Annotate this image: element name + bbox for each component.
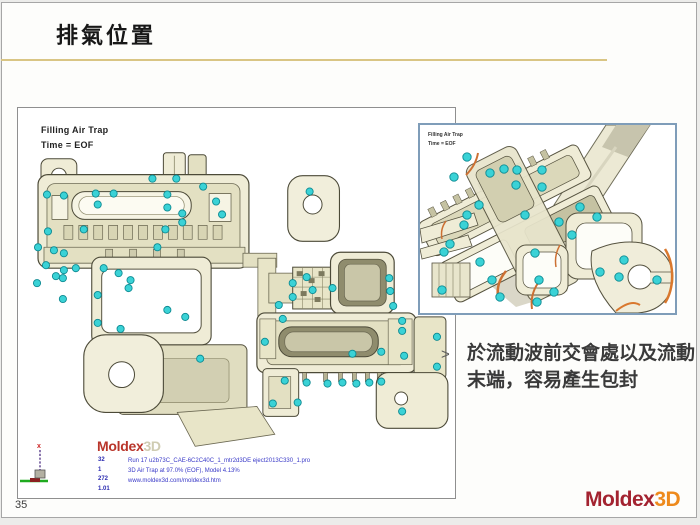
air-trap-marker [80, 226, 87, 233]
moldex3d-logo-primary: Moldex [585, 488, 654, 511]
inset-model-render [420, 125, 675, 313]
air-trap-marker [164, 204, 171, 211]
ribbed-block [432, 263, 470, 297]
annotation-text: 於流動波前交會處以及流動末端，容易產生包封 [467, 340, 699, 394]
air-trap-marker [538, 166, 546, 174]
air-trap-marker [59, 275, 66, 282]
air-trap-marker [463, 153, 471, 161]
air-trap-marker [218, 211, 225, 218]
inset-zoom-image: Filling Air Trap Time = EOF [418, 123, 677, 315]
air-trap-marker [433, 363, 440, 370]
run-info-number: 1 [98, 466, 118, 476]
air-trap-marker [125, 284, 132, 291]
air-trap-marker [386, 275, 393, 282]
air-trap-marker [438, 286, 446, 294]
air-trap-marker [60, 250, 67, 257]
air-trap-marker [349, 350, 356, 357]
air-trap-marker [281, 377, 288, 384]
page-number: 35 [15, 499, 27, 511]
moldex3d-watermark: Moldex3D [97, 438, 161, 454]
air-trap-marker [500, 165, 508, 173]
title-accent-line [1, 59, 607, 61]
air-trap-marker [275, 301, 282, 308]
air-trap-marker [303, 274, 310, 281]
result-label: Filling Air Trap Time = EOF [41, 123, 108, 153]
run-info-line: www.moldex3d.com/moldex3d.htm [128, 476, 310, 486]
air-trap-marker [59, 295, 66, 302]
moldex3d-watermark-secondary: 3D [143, 438, 160, 454]
main-simulation-image: Filling Air Trap Time = EOF [17, 107, 456, 499]
run-info-lines: Run 17 u2b73C_CAE-6C2C40C_1_mtr2d3DE eje… [128, 456, 310, 494]
air-trap-marker [433, 333, 440, 340]
air-trap-marker [34, 244, 41, 251]
air-trap-marker [399, 408, 406, 415]
air-trap-marker [329, 284, 336, 291]
right-top-box [331, 252, 395, 314]
air-trap-marker [115, 270, 122, 277]
air-trap-marker [94, 319, 101, 326]
air-trap-marker [596, 268, 604, 276]
air-trap-marker [279, 315, 286, 322]
air-trap-marker [60, 267, 67, 274]
air-trap-marker [173, 175, 180, 182]
air-trap-marker [476, 258, 484, 266]
air-trap-marker [261, 338, 268, 345]
moldex3d-watermark-primary: Moldex [97, 438, 143, 454]
air-trap-marker [179, 219, 186, 226]
air-trap-marker [401, 352, 408, 359]
air-trap-marker [94, 201, 101, 208]
air-trap-marker [164, 306, 171, 313]
air-trap-marker [92, 190, 99, 197]
air-trap-marker [162, 226, 169, 233]
air-trap-marker [353, 380, 360, 387]
moldex3d-logo-secondary: 3D [654, 488, 680, 511]
air-trap-marker [568, 231, 576, 239]
air-trap-marker [179, 210, 186, 217]
air-trap-marker [463, 211, 471, 219]
air-trap-marker [303, 379, 310, 386]
air-trap-marker [535, 276, 543, 284]
air-trap-marker [294, 399, 301, 406]
air-trap-marker [50, 247, 57, 254]
air-trap-marker [446, 240, 454, 248]
run-info-block: 32 1 272 1.01 Run 17 u2b73C_CAE-6C2C40C_… [98, 456, 310, 494]
axis-triad-icon: x [18, 438, 78, 496]
air-trap-marker [521, 211, 529, 219]
air-trap-marker [213, 198, 220, 205]
air-trap-marker [555, 218, 563, 226]
air-trap-marker [72, 265, 79, 272]
annotation-bullet: > [441, 346, 450, 363]
slide-stage: 排氣位置 Filling Air Trap Time = EOF [0, 0, 700, 525]
air-trap-marker [43, 191, 50, 198]
air-trap-marker [117, 325, 124, 332]
air-trap-marker [289, 280, 296, 287]
air-trap-marker [615, 273, 623, 281]
air-trap-marker [550, 288, 558, 296]
air-trap-marker [182, 313, 189, 320]
main-model-render [18, 108, 453, 496]
air-trap-marker [164, 191, 171, 198]
air-trap-marker [42, 262, 49, 269]
inset-label-line1: Filling Air Trap [428, 131, 463, 140]
air-trap-marker [512, 181, 520, 189]
run-info-number: 272 [98, 475, 118, 485]
air-trap-marker [60, 192, 67, 199]
air-trap-marker [94, 291, 101, 298]
air-trap-marker [200, 183, 207, 190]
page-title: 排氣位置 [56, 18, 156, 50]
air-trap-marker [450, 173, 458, 181]
air-trap-marker [378, 378, 385, 385]
air-trap-marker [33, 280, 40, 287]
result-label-line1: Filling Air Trap [41, 123, 108, 138]
air-trap-marker [306, 188, 313, 195]
air-trap-marker [486, 169, 494, 177]
upper-housing [38, 153, 249, 268]
air-trap-marker [513, 166, 521, 174]
air-trap-marker [324, 380, 331, 387]
air-trap-marker [127, 277, 134, 284]
air-trap-marker [52, 273, 59, 280]
air-trap-marker [538, 183, 546, 191]
air-trap-marker [149, 175, 156, 182]
air-trap-marker [339, 379, 346, 386]
air-trap-marker [620, 256, 628, 264]
run-info-line: Run 17 u2b73C_CAE-6C2C40C_1_mtr2d3DE eje… [128, 456, 310, 466]
air-trap-marker [399, 317, 406, 324]
air-trap-marker [197, 355, 204, 362]
run-info-number: 1.01 [98, 485, 118, 495]
inset-result-label: Filling Air Trap Time = EOF [428, 131, 463, 149]
air-trap-marker [440, 248, 448, 256]
air-trap-marker [460, 221, 468, 229]
air-trap-marker [44, 228, 51, 235]
air-trap-marker [653, 276, 661, 284]
air-trap-marker [390, 302, 397, 309]
air-trap-marker [488, 276, 496, 284]
air-trap-marker [366, 379, 373, 386]
run-info-number: 32 [98, 456, 118, 466]
result-label-line2: Time = EOF [41, 138, 108, 153]
air-trap-marker [593, 213, 601, 221]
air-trap-marker [100, 265, 107, 272]
inset-label-line2: Time = EOF [428, 140, 463, 149]
lower-plate [84, 335, 164, 413]
air-trap-marker [531, 249, 539, 257]
air-trap-marker [289, 293, 296, 300]
svg-text:x: x [37, 443, 41, 450]
run-info-numbers: 32 1 272 1.01 [98, 456, 118, 494]
moldex3d-logo: Moldex3D [585, 488, 680, 512]
air-trap-marker [399, 327, 406, 334]
air-trap-marker [496, 293, 504, 301]
air-trap-marker [154, 244, 161, 251]
air-trap-marker [378, 348, 385, 355]
air-trap-marker [475, 201, 483, 209]
air-trap-marker [576, 203, 584, 211]
air-trap-marker [387, 287, 394, 294]
right-top-plate [288, 176, 340, 242]
run-info-line: 3D Air Trap at 97.0% (EOF), Model 4.13% [128, 466, 310, 476]
air-trap-marker [110, 190, 117, 197]
air-trap-marker [309, 286, 316, 293]
air-trap-marker [533, 298, 541, 306]
air-trap-marker [269, 400, 276, 407]
